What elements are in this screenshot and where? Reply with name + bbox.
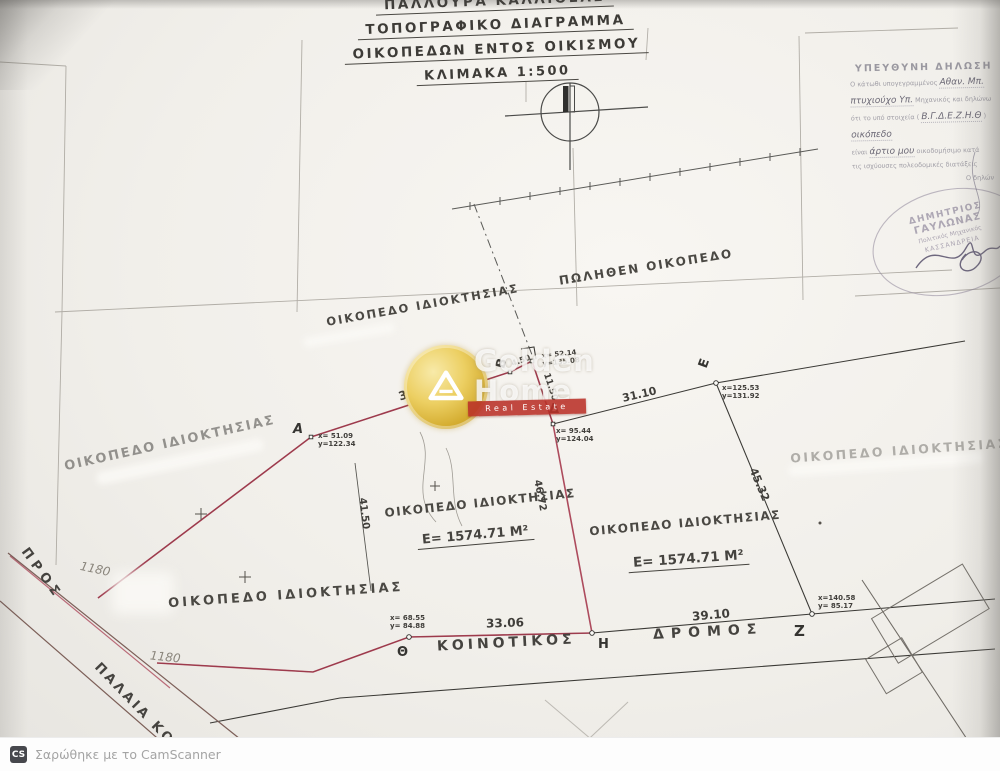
- coords-z: x=140.58 y= 85.17: [818, 594, 855, 610]
- title-block: ΠΑΛΛΟΥΡΑ ΚΑΛΛΙΘΕΑΣ ΤΟΠΟΓΡΑΦΙΚΟ ΔΙΑΓΡΑΜΜΑ…: [334, 0, 657, 92]
- declaration-heading: ΥΠΕΥΘΥΝΗ ΔΗΛΩΣΗ: [850, 60, 998, 74]
- measurement-hth: 33.06: [486, 615, 524, 630]
- camscanner-logo-icon: CS: [10, 746, 27, 763]
- declaration-handwriting: άρτιο μου: [869, 146, 914, 158]
- declaration-handwriting: πτυχιούχο Υπ.: [850, 95, 913, 107]
- declaration-handwriting: οικόπεδο: [851, 129, 892, 141]
- coords-e: x=125.53 y=131.92: [722, 384, 759, 400]
- watermark-banner: Real Estate: [468, 398, 586, 416]
- scanned-survey-page: ΠΑΛΛΟΥΡΑ ΚΑΛΛΙΘΕΑΣ ΤΟΠΟΓΡΑΦΙΚΟ ΔΙΑΓΡΑΜΜΑ…: [0, 0, 1000, 771]
- watermark-word1: Golden: [474, 344, 595, 378]
- point-label-h: Η: [598, 637, 609, 652]
- coord-y: y= 84.88: [390, 622, 425, 630]
- declaration-handwriting: Αθαν. Μπ.: [939, 77, 984, 89]
- declaration-text: Ο κάτωθι υπογεγραμμένος: [850, 79, 938, 89]
- declaration-text: Μηχανικός και δηλώνω: [915, 95, 991, 105]
- white-smear: [112, 572, 174, 614]
- declaration-text: τις ισχύουσες πολεοδομικές διατάξεις: [852, 161, 1000, 172]
- coord-y: y=131.92: [722, 392, 759, 400]
- declaration-text: ): [983, 112, 986, 120]
- coord-x: x=125.53: [722, 384, 759, 392]
- coord-x: x= 68.55: [390, 614, 425, 622]
- coord-x: x=140.58: [818, 594, 855, 602]
- coord-y: y= 85.17: [818, 602, 855, 610]
- triangle-logo-icon: [424, 365, 468, 409]
- camscanner-footer: CS Σαρώθηκε με το CamScanner: [0, 737, 1000, 771]
- declaration-handwriting: Β.Γ.Δ.Ε.Ζ.Η.Θ: [921, 111, 981, 123]
- coords-d: x= 95.44 y=124.04: [556, 427, 593, 443]
- dashed-boundary-line: [474, 204, 534, 360]
- coord-x: x= 95.44: [556, 427, 593, 435]
- declaration-text: οικοδομήσιμο κατά: [916, 145, 979, 154]
- declaration-text: ότι το υπό στοιχεία (: [851, 113, 920, 122]
- camscanner-footer-text: Σαρώθηκε με το CamScanner: [35, 747, 221, 762]
- point-label-a: Α: [293, 422, 303, 437]
- title-scale: ΚΛΙΜΑΚΑ 1:500: [416, 63, 579, 86]
- coord-y: y=122.34: [318, 440, 355, 448]
- point-label-z: Ζ: [794, 622, 805, 640]
- coord-x: x= 51.09: [318, 432, 355, 440]
- coords-a: x= 51.09 y=122.34: [318, 432, 355, 448]
- coord-y: y=124.04: [556, 435, 593, 443]
- point-label-th: Θ: [397, 645, 408, 660]
- coords-th: x= 68.55 y= 84.88: [390, 614, 425, 630]
- ticked-boundary-line: [452, 148, 818, 210]
- declaration-block: ΥΠΕΥΘΥΝΗ ΔΗΛΩΣΗ Ο κάτωθι υπογεγραμμένος …: [850, 60, 1000, 191]
- declaration-text: είναι: [851, 148, 867, 156]
